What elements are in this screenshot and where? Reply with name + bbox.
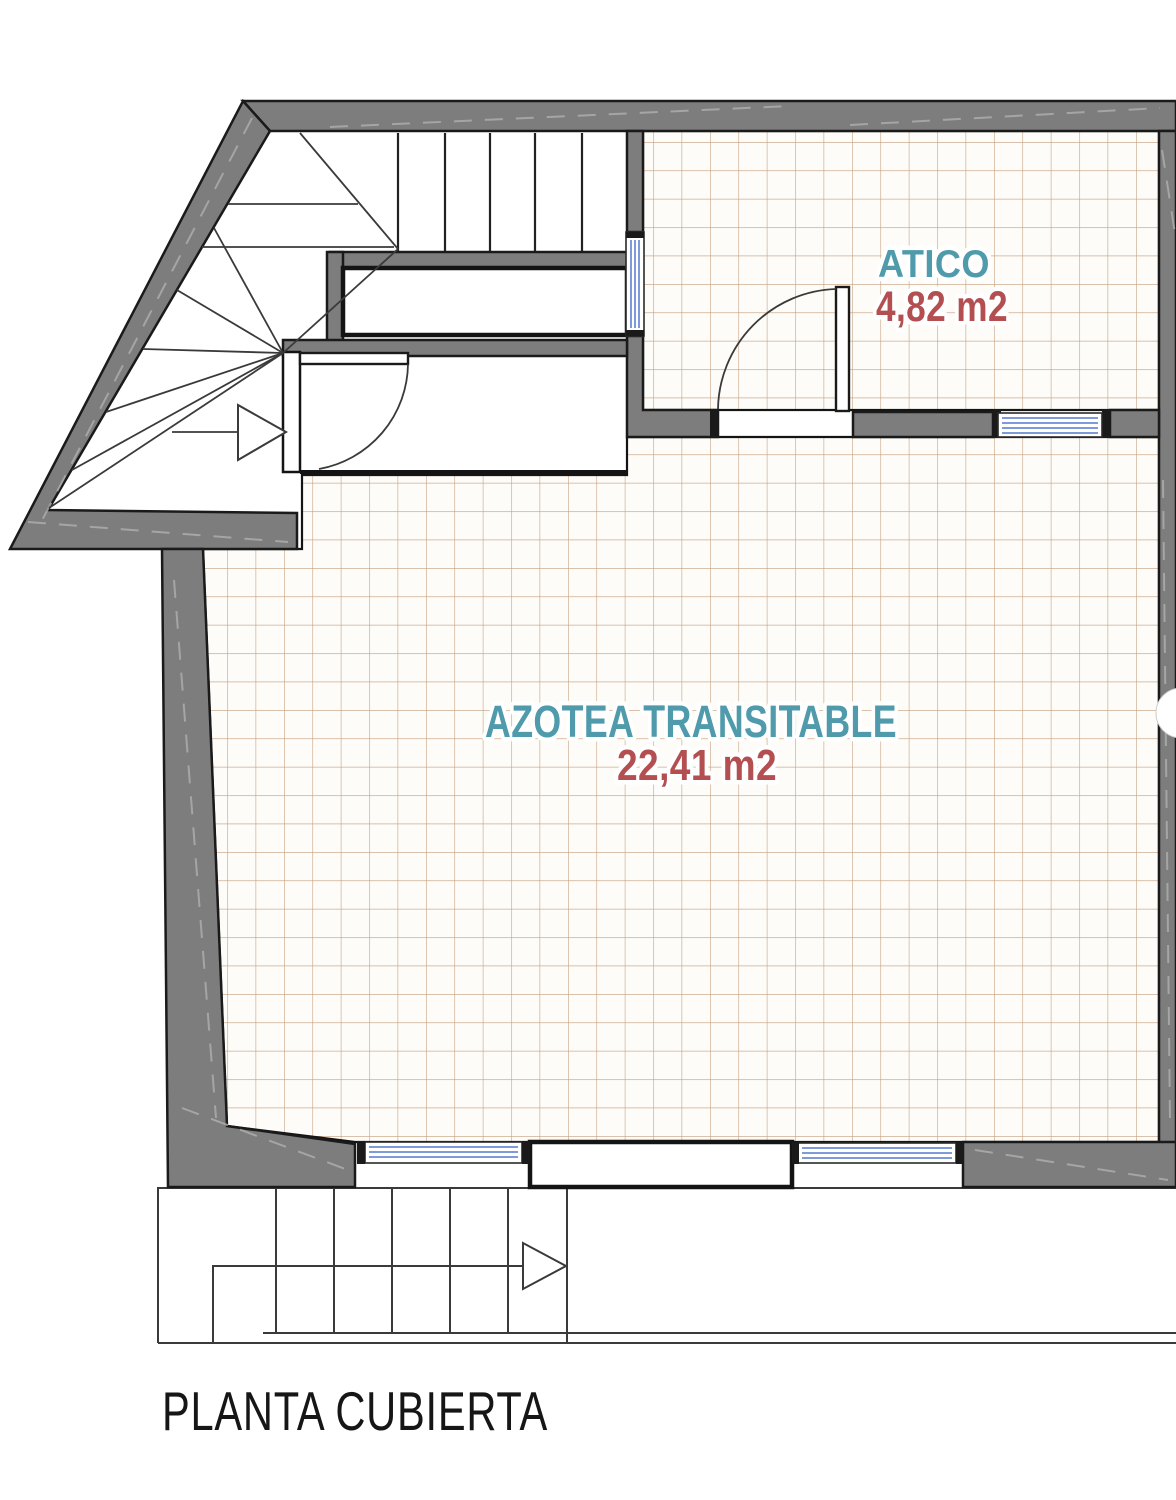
window-atico-bottom [998, 413, 1102, 437]
floor-plan-drawing: ATICO 4,82 m2 AZOTEA TRANSITABLE 22,41 m… [0, 0, 1176, 1500]
wall-atico-bottom-mid [853, 412, 993, 437]
room-area-azotea: 22,41 m2 [617, 741, 777, 790]
wall-atico-left-upper [627, 131, 643, 232]
wall-top [243, 101, 1176, 131]
wall-cap [1102, 409, 1110, 438]
floor-plan-page: ATICO 4,82 m2 AZOTEA TRANSITABLE 22,41 m… [0, 0, 1176, 1500]
window-facade-right [792, 1142, 963, 1164]
window-facade-left [357, 1141, 530, 1164]
bottom-wall-white-block [530, 1142, 792, 1187]
door-leaf [300, 353, 408, 364]
door-leaf [836, 287, 849, 411]
wall-right [1159, 131, 1176, 1187]
closet-shaft [343, 268, 627, 335]
wall-cap [710, 409, 718, 438]
door-jamb [283, 352, 300, 472]
room-label-atico: ATICO [878, 243, 990, 286]
room-label-azotea: AZOTEA TRANSITABLE [485, 696, 897, 747]
room-area-atico: 4,82 m2 [876, 283, 1008, 331]
plan-title: PLANTA CUBIERTA [162, 1380, 548, 1442]
wall-closet-top [330, 252, 627, 268]
window-atico-left [626, 232, 644, 336]
wall-atico-bottom-right [1110, 410, 1159, 437]
